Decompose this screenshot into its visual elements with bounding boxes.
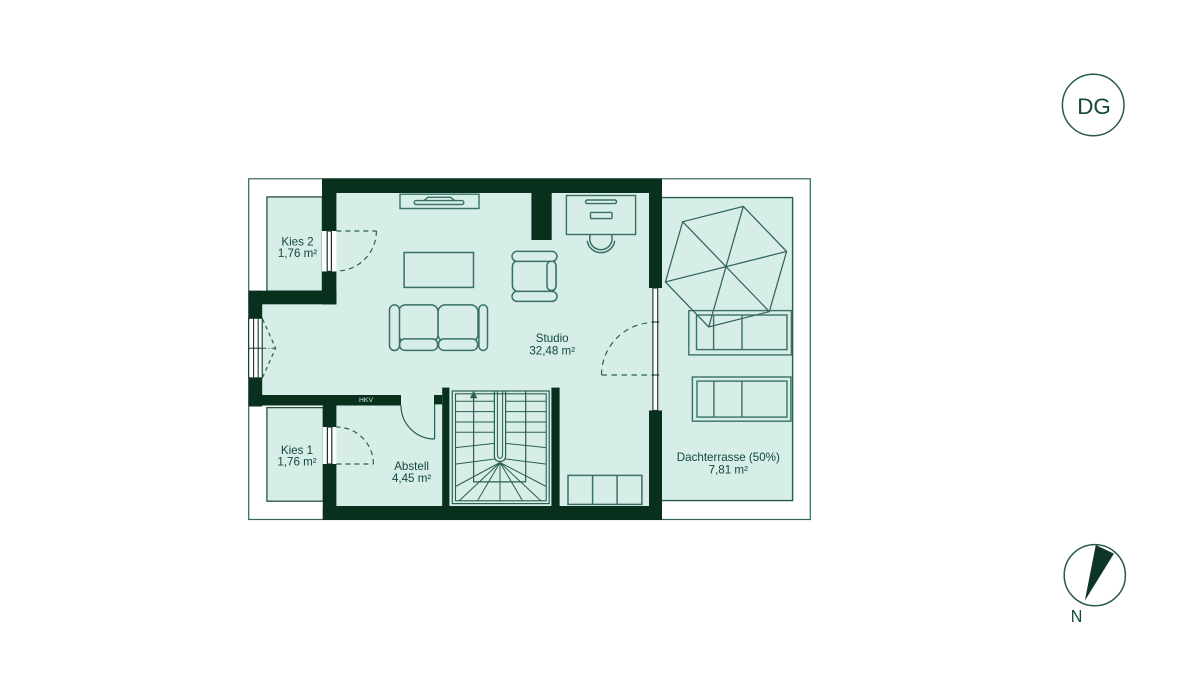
svg-text:1,76 m²: 1,76 m²: [278, 247, 317, 260]
svg-text:7,81 m²: 7,81 m²: [709, 463, 748, 476]
svg-text:DG: DG: [1077, 94, 1111, 119]
svg-text:N: N: [1071, 606, 1083, 626]
svg-text:Dachterrasse (50%): Dachterrasse (50%): [677, 451, 780, 464]
svg-text:Studio: Studio: [536, 332, 569, 345]
svg-text:32,48 m²: 32,48 m²: [529, 345, 575, 358]
svg-text:HKV: HKV: [359, 397, 373, 404]
svg-text:4,45 m²: 4,45 m²: [392, 472, 431, 485]
svg-text:1,76 m²: 1,76 m²: [277, 455, 316, 468]
